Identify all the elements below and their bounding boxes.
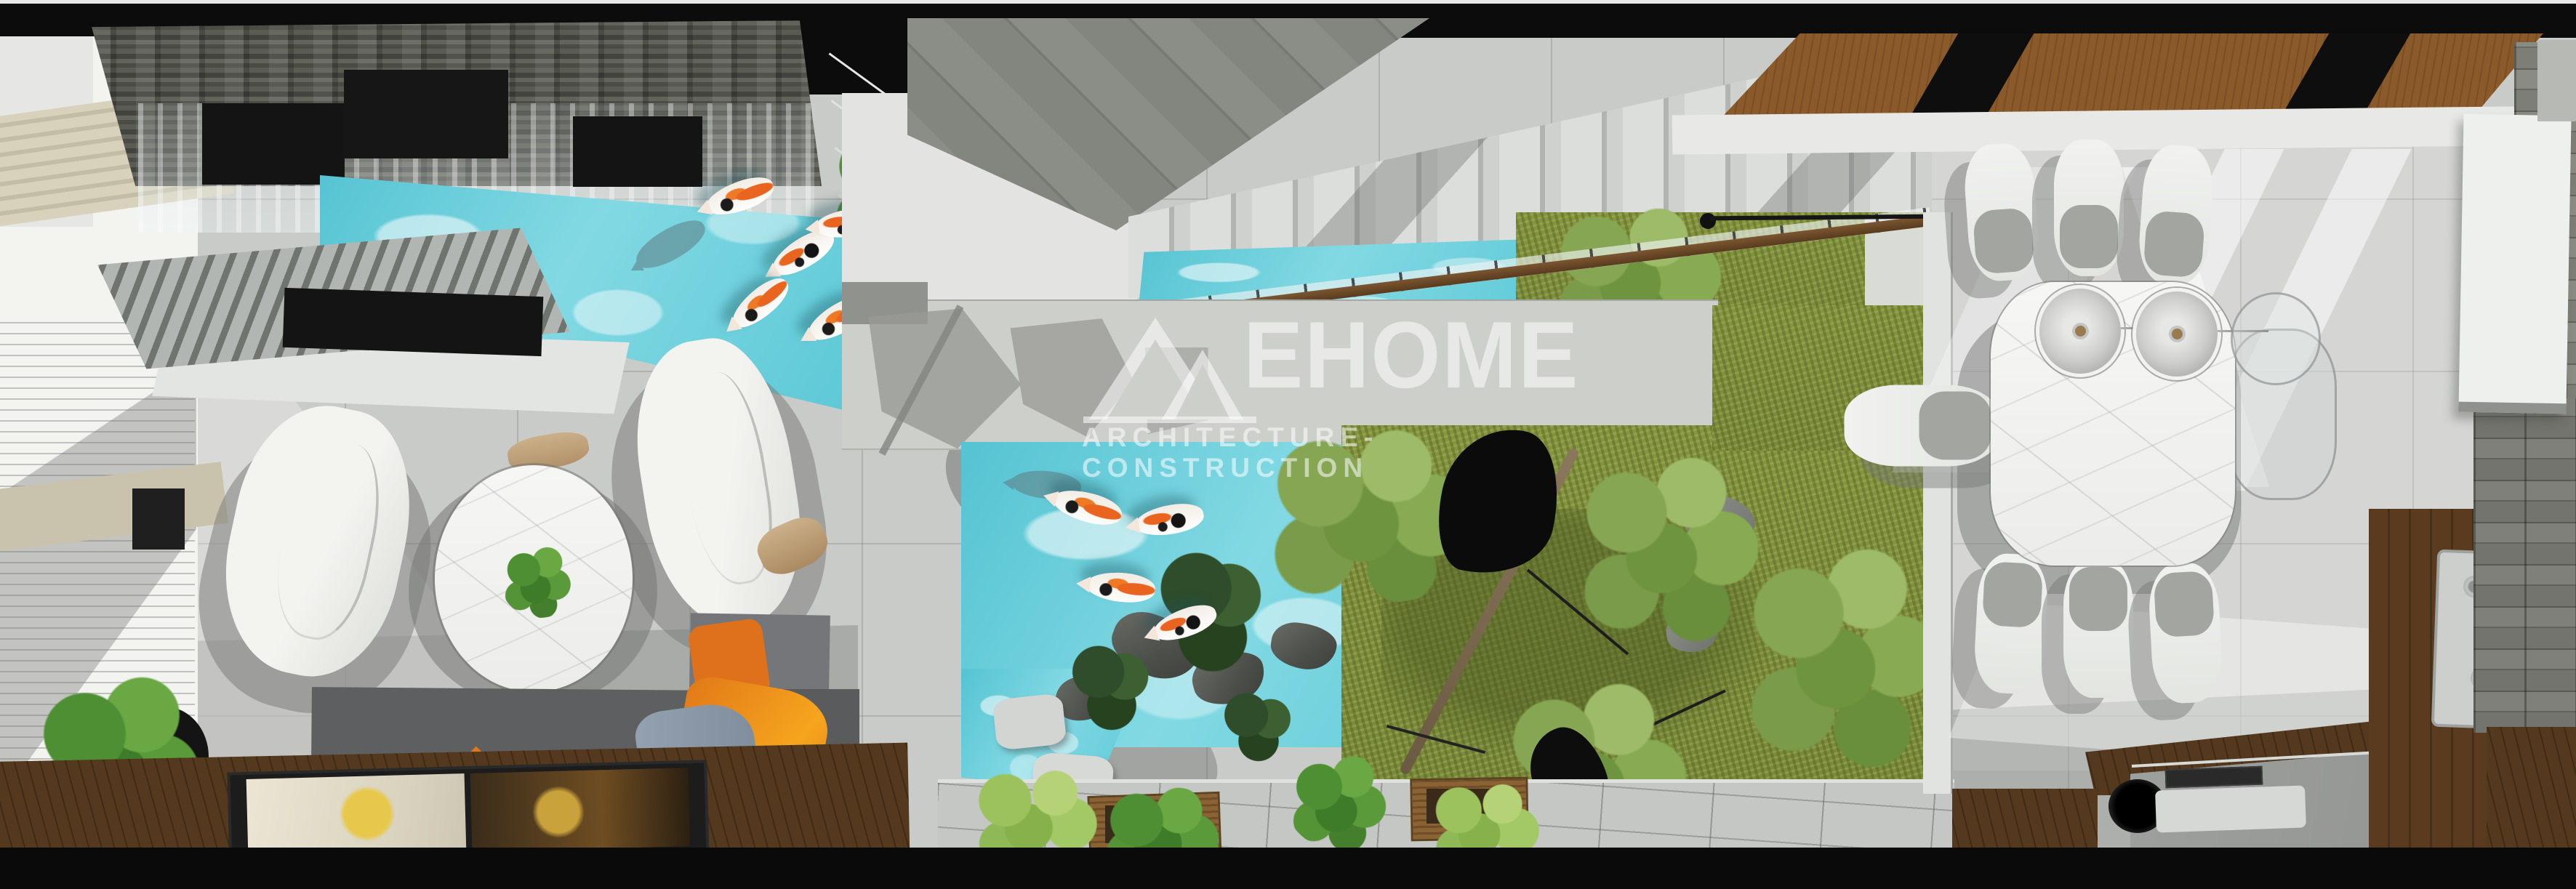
stepping-stone-1	[992, 693, 1067, 751]
watermark-brand: EHOME	[1243, 300, 1579, 409]
cooktop-control-strip	[2165, 766, 2263, 789]
tv-screen-right	[470, 768, 691, 852]
courtyard-shrub-2	[1067, 638, 1156, 734]
door-gap-dark	[132, 488, 185, 550]
pendant-lamp-glass	[2231, 292, 2321, 385]
dining-chair-bottom-1	[1973, 552, 2050, 696]
bottom-black-wall	[0, 848, 2576, 889]
walkway-bush-3	[1285, 752, 1398, 850]
dining-chair-bottom-2	[2063, 558, 2133, 698]
courtyard-right-wall	[1923, 212, 1953, 794]
dining-chair-top-2	[2054, 140, 2124, 276]
courtyard-shrub-3	[1218, 689, 1299, 763]
stone-wall-right-lower	[2473, 398, 2576, 733]
dining-chair-bottom-3	[2147, 562, 2224, 705]
dining-chair-left	[1845, 385, 2001, 467]
cooktop-tray	[2155, 785, 2306, 832]
white-cabinet	[2458, 114, 2571, 414]
ceiling-opening-3	[573, 116, 702, 187]
coffee-table-plant	[500, 544, 579, 618]
ceiling-opening-1	[202, 103, 345, 185]
watermark: EHOME ARCHITECTURE-CONSTRUCTION	[1089, 309, 1525, 451]
pendant-lamp-1	[2036, 285, 2124, 377]
gray-wall-corner-strip	[2537, 40, 2576, 121]
render-canvas: EHOME ARCHITECTURE-CONSTRUCTION	[0, 0, 2576, 889]
pendant-lamp-2	[2132, 288, 2221, 380]
pergola-screen	[283, 288, 544, 356]
watermark-tagline: ARCHITECTURE-CONSTRUCTION	[1082, 422, 1533, 483]
handrail-end-knob	[1700, 213, 1716, 229]
ceiling-opening-2	[344, 70, 508, 158]
tv-screen-left	[246, 773, 467, 858]
